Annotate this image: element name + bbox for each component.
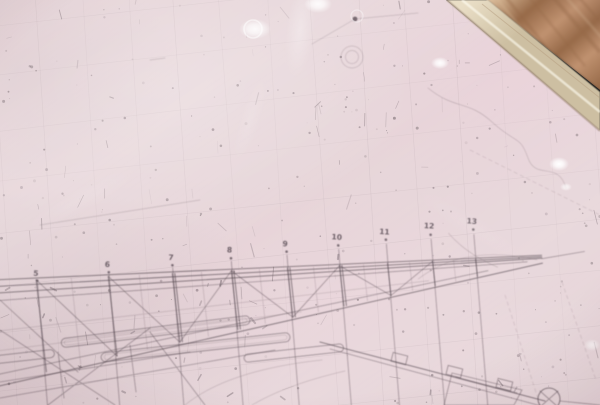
vignette-overlay (0, 0, 600, 405)
photo-svg: 5 6 7 8 9 10 11 12 13 (0, 0, 600, 405)
blueprint-photo: 5 6 7 8 9 10 11 12 13 (0, 0, 600, 405)
